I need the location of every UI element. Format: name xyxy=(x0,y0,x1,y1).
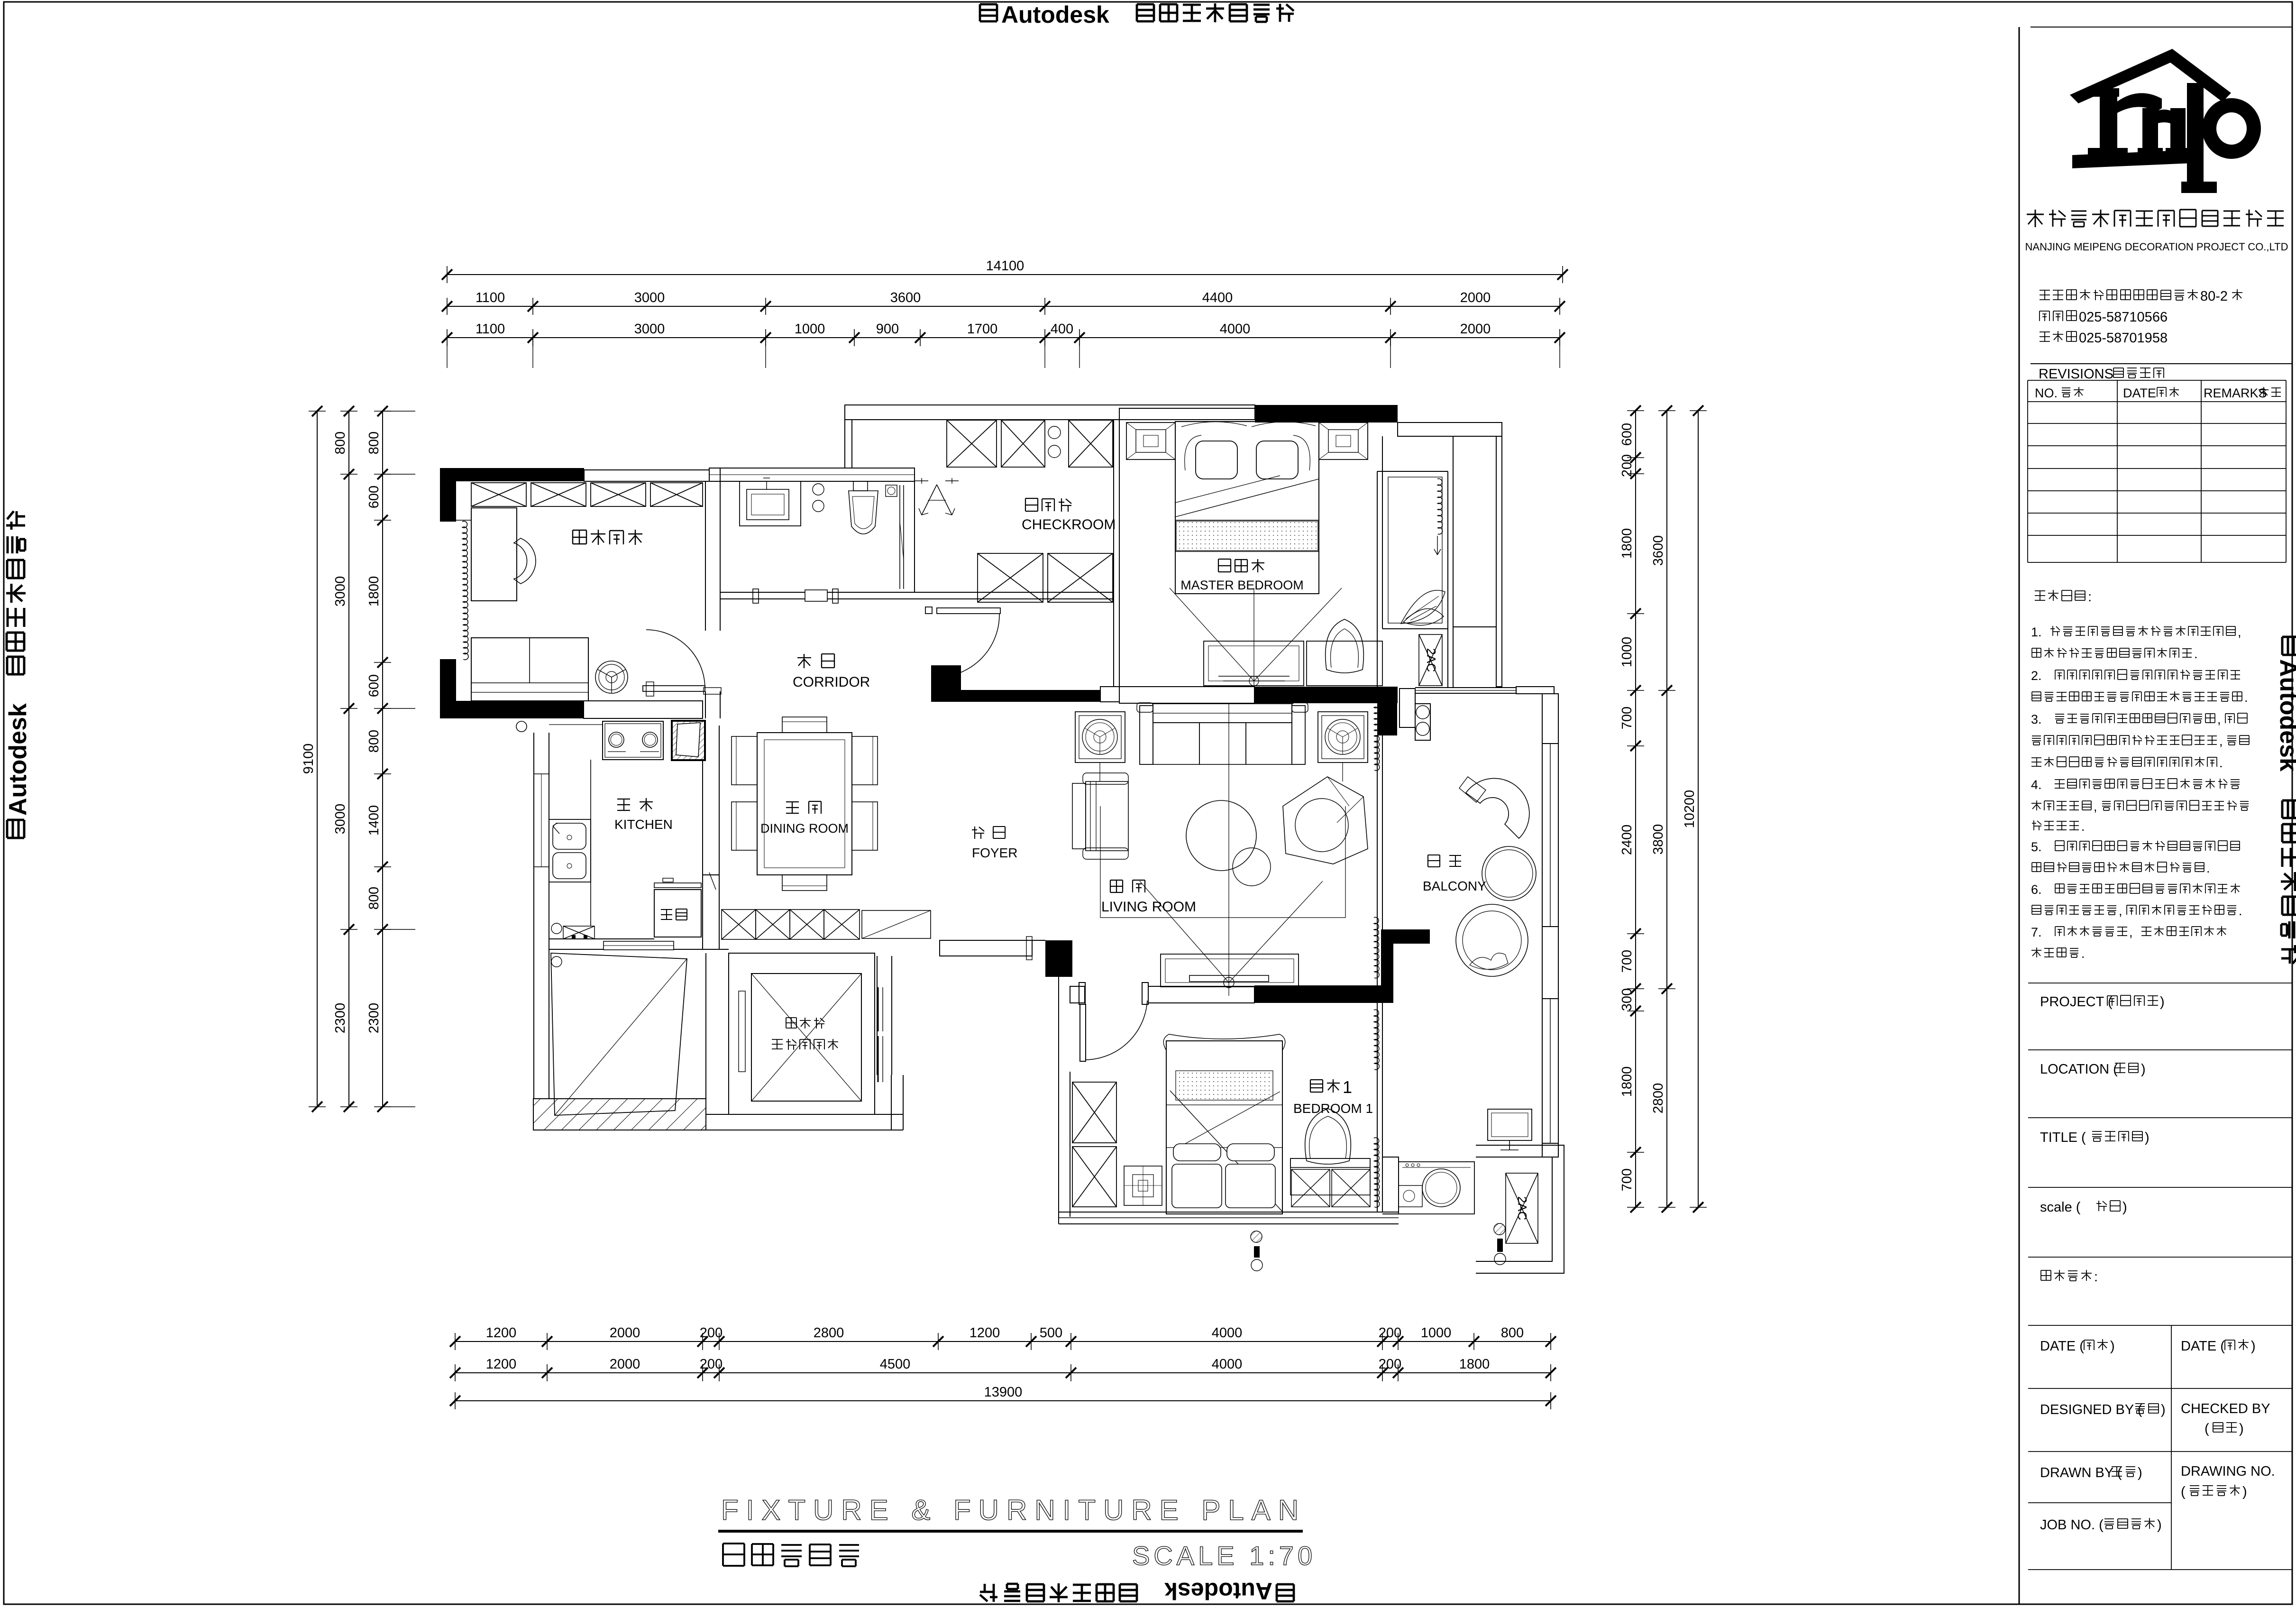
svg-text:LIVING ROOM: LIVING ROOM xyxy=(1101,899,1196,915)
svg-text:.: . xyxy=(2206,861,2210,875)
svg-text:LOCATION (: LOCATION ( xyxy=(2040,1062,2118,1077)
svg-text:2800: 2800 xyxy=(1651,1083,1666,1114)
svg-text:DATE (: DATE ( xyxy=(2181,1339,2225,1354)
svg-text:,: , xyxy=(2219,734,2223,748)
svg-text:200: 200 xyxy=(700,1325,723,1341)
svg-text:DESIGNED BY (: DESIGNED BY ( xyxy=(2040,1402,2142,1417)
svg-text:SCALE 1:70: SCALE 1:70 xyxy=(1132,1541,1316,1571)
svg-text:KITCHEN: KITCHEN xyxy=(614,817,673,832)
svg-text:2.: 2. xyxy=(2031,669,2042,683)
svg-text:4400: 4400 xyxy=(1202,290,1233,305)
svg-text:3000: 3000 xyxy=(333,576,348,607)
svg-text:200: 200 xyxy=(1379,1357,1401,1372)
svg-text:2300: 2300 xyxy=(366,1003,382,1034)
svg-text:Autodesk: Autodesk xyxy=(1001,1,1109,28)
svg-text:2AC: 2AC xyxy=(1424,648,1438,672)
svg-text:2000: 2000 xyxy=(610,1357,640,1372)
svg-text:5.: 5. xyxy=(2031,840,2042,854)
svg-text:(: ( xyxy=(2181,1484,2186,1499)
svg-text:,: , xyxy=(2094,799,2097,814)
svg-text:TITLE (: TITLE ( xyxy=(2040,1130,2086,1145)
svg-text:4000: 4000 xyxy=(1220,322,1251,337)
svg-text:): ) xyxy=(2141,1062,2146,1077)
svg-text:,: , xyxy=(2119,904,2122,918)
svg-text:700: 700 xyxy=(1619,707,1635,729)
svg-text:700: 700 xyxy=(1619,950,1635,973)
svg-text:600: 600 xyxy=(366,674,382,697)
svg-text:2AC: 2AC xyxy=(1515,1196,1529,1221)
svg-text:025-58710566: 025-58710566 xyxy=(2079,310,2168,325)
svg-text:1400: 1400 xyxy=(366,805,382,836)
svg-text:2800: 2800 xyxy=(814,1325,844,1341)
svg-text:2000: 2000 xyxy=(1460,322,1491,337)
svg-text:10200: 10200 xyxy=(1682,790,1697,828)
svg-text:3000: 3000 xyxy=(634,322,665,337)
svg-text:.: . xyxy=(2244,690,2248,705)
svg-text::: : xyxy=(2094,1269,2098,1285)
svg-text:1800: 1800 xyxy=(366,576,382,607)
svg-text:1100: 1100 xyxy=(476,322,505,337)
svg-text:MASTER BEDROOM: MASTER BEDROOM xyxy=(1180,578,1304,592)
svg-text:): ) xyxy=(2145,1130,2150,1145)
svg-text:200: 200 xyxy=(1619,454,1635,477)
svg-text:13900: 13900 xyxy=(984,1385,1023,1400)
svg-text:500: 500 xyxy=(1040,1325,1062,1341)
svg-text:1.: 1. xyxy=(2031,625,2042,639)
svg-text:Autodesk: Autodesk xyxy=(1164,1578,1272,1604)
svg-text:CORRIDOR: CORRIDOR xyxy=(793,674,870,690)
svg-text:CHECKROOM: CHECKROOM xyxy=(1022,517,1116,533)
svg-text:1200: 1200 xyxy=(486,1357,517,1372)
svg-text:,: , xyxy=(2238,625,2241,639)
svg-text:800: 800 xyxy=(366,432,382,454)
svg-text:025-58701958: 025-58701958 xyxy=(2079,331,2168,346)
svg-text:600: 600 xyxy=(1619,423,1635,446)
svg-text:NO.: NO. xyxy=(2035,386,2058,400)
svg-text:1800: 1800 xyxy=(1619,528,1635,559)
svg-text:9100: 9100 xyxy=(301,744,316,774)
svg-text:Autodesk: Autodesk xyxy=(4,703,32,816)
svg-text:4000: 4000 xyxy=(1212,1357,1243,1372)
svg-text:): ) xyxy=(2160,994,2165,1010)
svg-text:,: , xyxy=(2217,712,2221,726)
svg-text:800: 800 xyxy=(366,887,382,910)
svg-text:2400: 2400 xyxy=(1619,825,1635,855)
svg-text:1700: 1700 xyxy=(967,322,998,337)
svg-text:1000: 1000 xyxy=(1421,1325,1452,1341)
svg-text:3000: 3000 xyxy=(634,290,665,305)
svg-text:DINING ROOM: DINING ROOM xyxy=(760,821,849,836)
svg-text::: : xyxy=(2088,589,2092,605)
svg-text:2000: 2000 xyxy=(1460,290,1491,305)
svg-text:1000: 1000 xyxy=(795,322,825,337)
svg-text:2000: 2000 xyxy=(610,1325,640,1341)
svg-text:1: 1 xyxy=(1343,1077,1352,1097)
svg-text:): ) xyxy=(2242,1484,2247,1499)
svg-text:.: . xyxy=(2219,756,2223,770)
svg-text:): ) xyxy=(2110,1339,2115,1354)
svg-text:DRAWING NO.: DRAWING NO. xyxy=(2181,1464,2275,1479)
svg-text:1200: 1200 xyxy=(970,1325,1000,1341)
svg-text:.: . xyxy=(2081,946,2085,961)
svg-text:3000: 3000 xyxy=(333,804,348,835)
svg-text:,: , xyxy=(2129,925,2133,939)
svg-text:400: 400 xyxy=(1051,322,1073,337)
svg-text:.: . xyxy=(2194,647,2198,661)
svg-text:700: 700 xyxy=(1619,1168,1635,1191)
svg-text:4000: 4000 xyxy=(1212,1325,1243,1341)
svg-text:3.: 3. xyxy=(2031,712,2042,726)
svg-text:): ) xyxy=(2138,1465,2142,1480)
svg-text:6.: 6. xyxy=(2031,882,2042,897)
svg-text:): ) xyxy=(2161,1402,2166,1417)
svg-text:600: 600 xyxy=(366,486,382,508)
svg-text:REMARKS: REMARKS xyxy=(2204,386,2267,400)
svg-text:800: 800 xyxy=(366,730,382,753)
svg-text:DATE: DATE xyxy=(2123,386,2156,400)
svg-text:Autodesk: Autodesk xyxy=(2275,659,2296,772)
svg-text:CHECKED BY: CHECKED BY xyxy=(2181,1401,2270,1416)
svg-text:FOYER: FOYER xyxy=(972,845,1017,860)
svg-text:JOB NO. (: JOB NO. ( xyxy=(2040,1517,2104,1533)
svg-text:BALCONY: BALCONY xyxy=(1423,879,1486,893)
svg-text:3600: 3600 xyxy=(1651,535,1666,566)
svg-text:80-2: 80-2 xyxy=(2200,289,2228,304)
svg-text:): ) xyxy=(2157,1517,2162,1533)
svg-text:1800: 1800 xyxy=(1619,1066,1635,1097)
svg-text:800: 800 xyxy=(333,432,348,454)
svg-text:(: ( xyxy=(2205,1421,2209,1436)
svg-text:NANJING MEIPENG DECORATION PRO: NANJING MEIPENG DECORATION PROJECT CO.,L… xyxy=(2025,241,2288,253)
svg-text:.: . xyxy=(2239,904,2242,918)
svg-text:900: 900 xyxy=(876,322,899,337)
svg-text:FIXTURE & FURNITURE PLAN: FIXTURE & FURNITURE PLAN xyxy=(721,1494,1306,1526)
svg-text:PROJECT (: PROJECT ( xyxy=(2040,994,2113,1010)
svg-text:REVISIONS: REVISIONS xyxy=(2039,367,2113,382)
svg-text:1800: 1800 xyxy=(1459,1357,1490,1372)
svg-text:2300: 2300 xyxy=(333,1003,348,1034)
svg-text:200: 200 xyxy=(700,1357,723,1372)
svg-text:1000: 1000 xyxy=(1619,637,1635,668)
svg-text:): ) xyxy=(2251,1339,2256,1354)
svg-text:1200: 1200 xyxy=(486,1325,517,1341)
svg-text:3800: 3800 xyxy=(1651,824,1666,855)
svg-text:): ) xyxy=(2122,1200,2127,1215)
svg-text:800: 800 xyxy=(1501,1325,1524,1341)
svg-text:BEDROOM 1: BEDROOM 1 xyxy=(1293,1101,1373,1116)
svg-text:.: . xyxy=(2081,819,2085,834)
svg-text:300: 300 xyxy=(1619,988,1635,1011)
svg-text:4500: 4500 xyxy=(880,1357,911,1372)
svg-text:DRAWN BY (: DRAWN BY ( xyxy=(2040,1465,2122,1480)
svg-text:14100: 14100 xyxy=(986,258,1025,274)
svg-text:): ) xyxy=(2239,1421,2244,1436)
svg-text:7.: 7. xyxy=(2031,925,2042,939)
svg-text:scale (: scale ( xyxy=(2040,1200,2081,1215)
svg-text:200: 200 xyxy=(1379,1325,1401,1341)
svg-text:3600: 3600 xyxy=(890,290,921,305)
svg-text:1100: 1100 xyxy=(476,290,505,305)
svg-text:4.: 4. xyxy=(2031,778,2042,792)
svg-text:DATE (: DATE ( xyxy=(2040,1339,2084,1354)
